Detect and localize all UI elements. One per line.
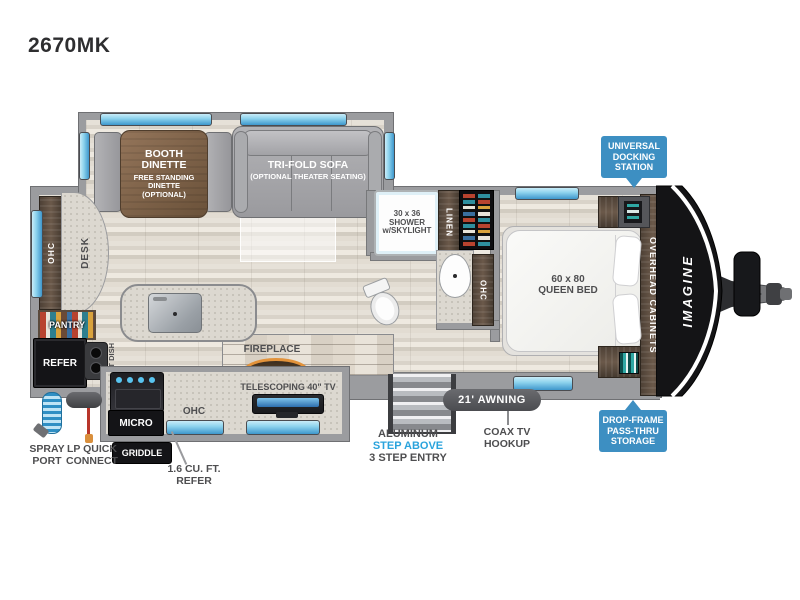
shower: 30 x 36 SHOWER w/SKYLIGHT bbox=[374, 190, 440, 256]
booth-dinette-table: BOOTH DINETTE FREE STANDING DINETTE (OPT… bbox=[120, 130, 208, 218]
step-entry-line2: STEP ABOVE bbox=[356, 440, 460, 452]
nose-and-hitch: IMAGINE bbox=[656, 180, 796, 404]
burner-3 bbox=[138, 377, 144, 383]
nightstand-bottom bbox=[598, 346, 642, 378]
sofa-title: TRI-FOLD SOFA bbox=[233, 159, 383, 171]
propane-cover bbox=[734, 252, 760, 316]
docking-led-1 bbox=[627, 204, 639, 207]
lp-connect-label: LP QUICK CONNECT bbox=[60, 444, 124, 468]
pet-bowl-1 bbox=[90, 347, 102, 359]
slide-window-right-top bbox=[240, 113, 347, 126]
model-title: 2670MK bbox=[28, 34, 110, 58]
wardrobe bbox=[459, 190, 494, 250]
trifold-sofa: TRI-FOLD SOFA (OPTIONAL THEATER SEATING) bbox=[232, 126, 384, 218]
sofa-backrest bbox=[243, 130, 373, 156]
awning-label: 21' AWNING bbox=[443, 389, 541, 411]
rear-wall-window bbox=[31, 210, 43, 298]
callout-storage: DROP-FRAME PASS-THRU STORAGE bbox=[599, 410, 667, 452]
dinette-subtitle: FREE STANDING DINETTE (OPTIONAL) bbox=[134, 174, 195, 200]
fireplace-label: FIREPLACE bbox=[222, 344, 322, 355]
lp-connect-cylinder bbox=[66, 392, 102, 408]
cooktop bbox=[110, 372, 164, 412]
slide-window-left-top bbox=[100, 113, 212, 126]
sink-drain bbox=[173, 312, 177, 316]
awning-text: 21' AWNING bbox=[458, 394, 526, 406]
bedroom-top-window bbox=[515, 187, 579, 200]
lp-connect-line bbox=[87, 408, 90, 434]
wardrobe-clothes-right bbox=[478, 194, 490, 246]
kitchen-ohc-window bbox=[166, 420, 224, 435]
pillow-bottom bbox=[612, 293, 642, 345]
slide-window-right-end bbox=[384, 132, 395, 180]
hitch-tip bbox=[780, 288, 792, 300]
burner-1 bbox=[116, 377, 122, 383]
bed-label: 60 x 80 QUEEN BED bbox=[516, 274, 620, 296]
sofa-label-group: TRI-FOLD SOFA (OPTIONAL THEATER SEATING) bbox=[233, 159, 383, 181]
refer-label: REFER bbox=[43, 358, 77, 369]
slide-window-left-end bbox=[79, 132, 90, 180]
callout-docking-text: UNIVERSAL DOCKING STATION bbox=[608, 141, 660, 173]
burner-4 bbox=[149, 377, 155, 383]
burner-2 bbox=[127, 377, 133, 383]
range-front bbox=[115, 389, 161, 409]
tv-label: TELESCOPING 40" TV bbox=[236, 382, 340, 392]
bath-ohc: OHC bbox=[472, 254, 494, 326]
linen-cabinet: LINEN bbox=[438, 190, 460, 254]
kitchen-ohc-label: OHC bbox=[168, 406, 220, 417]
refrigerator: REFER bbox=[33, 338, 87, 388]
microwave: MICRO bbox=[108, 410, 164, 436]
mini-refer-label: 1.6 CU. FT. REFER bbox=[158, 464, 230, 488]
docking-station-unit bbox=[618, 196, 650, 228]
docking-led-3 bbox=[627, 216, 639, 219]
dinette-bench-right bbox=[204, 132, 232, 212]
dinette-bench-left bbox=[94, 132, 122, 212]
floorplan-canvas: 2670MK FIREPLACE BOOTH DINETTE FREE STAN… bbox=[0, 0, 800, 600]
callout-docking: UNIVERSAL DOCKING STATION bbox=[601, 136, 667, 178]
sofa-extended-footprint bbox=[240, 214, 336, 262]
callout-docking-tail bbox=[626, 178, 642, 188]
vanity-drain bbox=[453, 274, 457, 278]
step-entry-line3: 3 STEP ENTRY bbox=[356, 452, 460, 464]
vanity-sink bbox=[439, 254, 471, 298]
tv-screen bbox=[257, 398, 319, 407]
coax-leader-line bbox=[507, 411, 509, 425]
telescoping-tv bbox=[252, 394, 324, 414]
docking-led-2 bbox=[627, 210, 639, 213]
pantry: PANTRY bbox=[38, 310, 96, 340]
sink-faucet bbox=[153, 297, 167, 301]
linen-label: LINEN bbox=[445, 208, 454, 237]
callout-storage-tail bbox=[625, 400, 641, 410]
tv-cabinet-window bbox=[246, 420, 320, 435]
rear-ohc-label: OHC bbox=[46, 242, 56, 264]
bath-ohc-label: OHC bbox=[479, 280, 488, 301]
hitch-coupler bbox=[766, 283, 782, 305]
griddle-label: GRIDDLE bbox=[122, 448, 163, 458]
pantry-label: PANTRY bbox=[49, 320, 85, 330]
nightstand-bottom-screen bbox=[619, 352, 639, 374]
shower-label: 30 x 36 SHOWER w/SKYLIGHT bbox=[383, 210, 432, 237]
step-entry-line1: ALUMINUM bbox=[356, 428, 460, 440]
callout-storage-text: DROP-FRAME PASS-THRU STORAGE bbox=[603, 415, 664, 447]
brand-logo: IMAGINE bbox=[680, 254, 695, 327]
island-sink bbox=[148, 293, 202, 333]
tv-base bbox=[276, 412, 298, 418]
sofa-subtitle: (OPTIONAL THEATER SEATING) bbox=[233, 172, 383, 181]
lp-connect-tip bbox=[85, 434, 93, 443]
kitchen-island bbox=[120, 284, 257, 342]
desk-label: DESK bbox=[80, 237, 91, 269]
dinette-title: BOOTH DINETTE bbox=[142, 149, 187, 171]
step-entry-label: ALUMINUM STEP ABOVE 3 STEP ENTRY bbox=[356, 428, 460, 465]
micro-label: MICRO bbox=[119, 418, 152, 429]
wardrobe-clothes-left bbox=[463, 194, 475, 246]
coax-label: COAX TV HOOKUP bbox=[470, 427, 544, 451]
